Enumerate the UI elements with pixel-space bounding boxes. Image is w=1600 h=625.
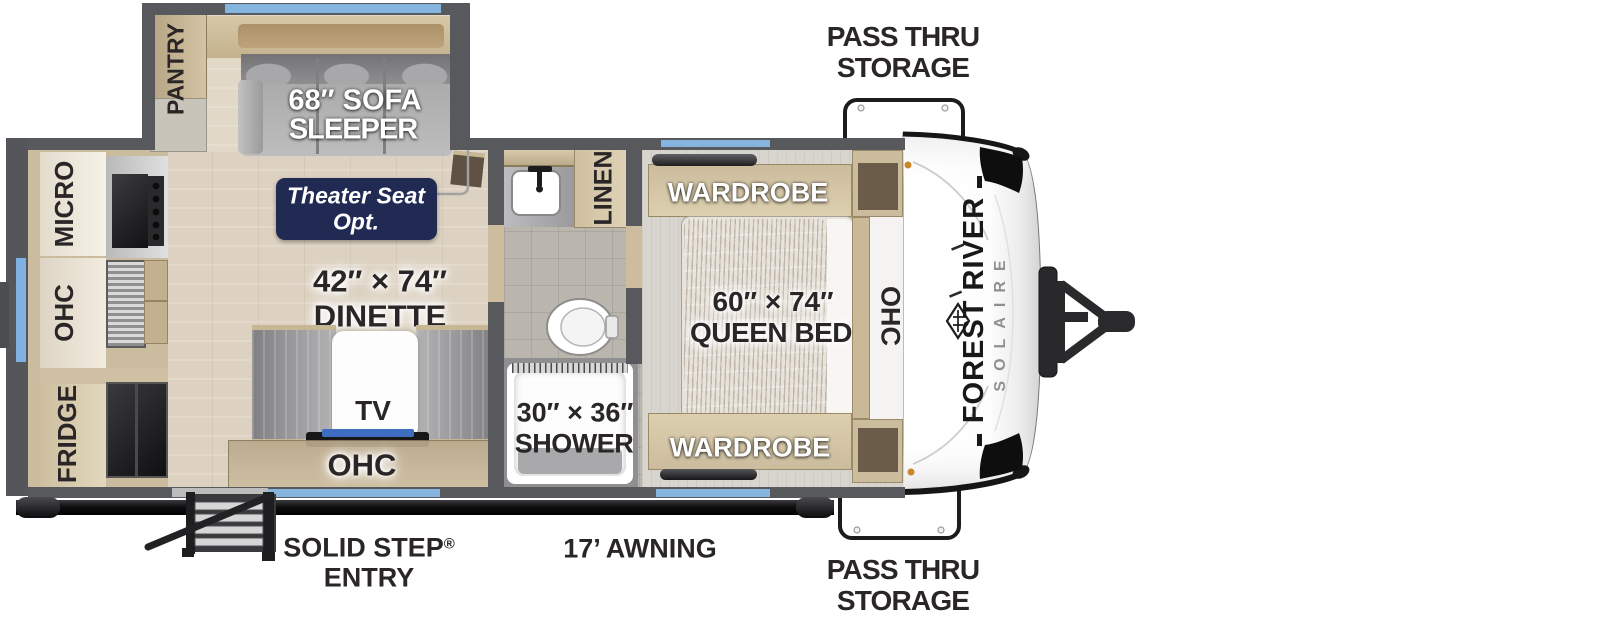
svg-text:FOREST RIVER: FOREST RIVER xyxy=(958,197,990,423)
svg-text:SOLAIRE: SOLAIRE xyxy=(992,250,1009,391)
